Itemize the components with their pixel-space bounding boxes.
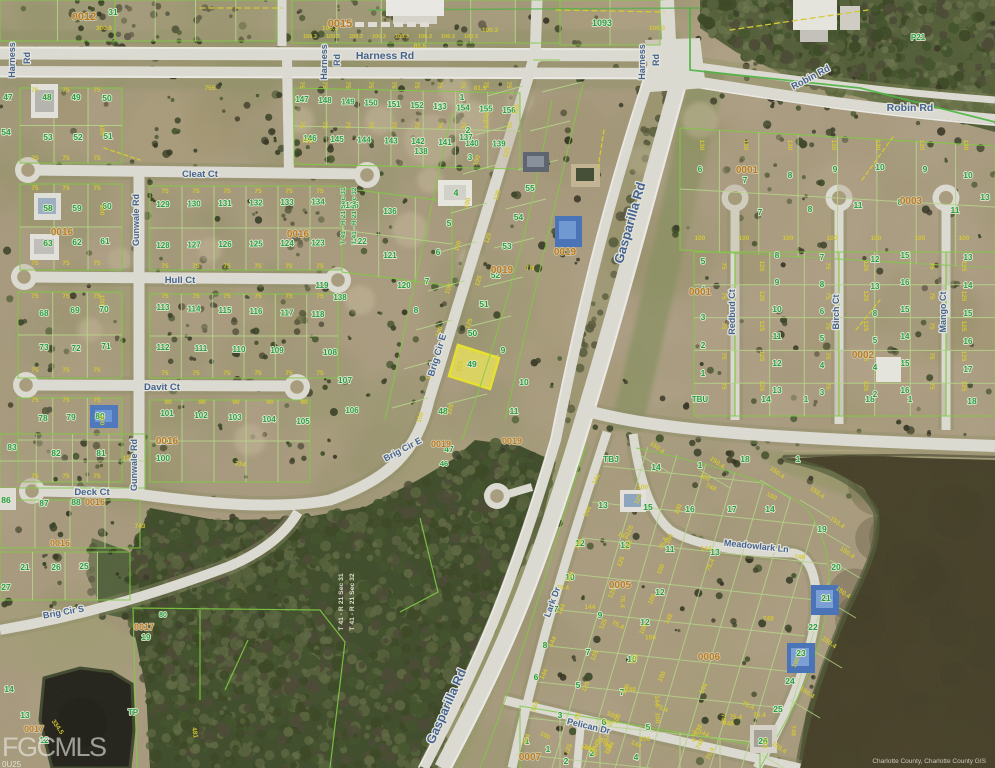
svg-text:0U25: 0U25 (2, 760, 22, 768)
svg-text:FGCMLS: FGCMLS (2, 732, 106, 762)
svg-text:Charlotte County, Charlotte Co: Charlotte County, Charlotte County GIS (872, 758, 986, 765)
